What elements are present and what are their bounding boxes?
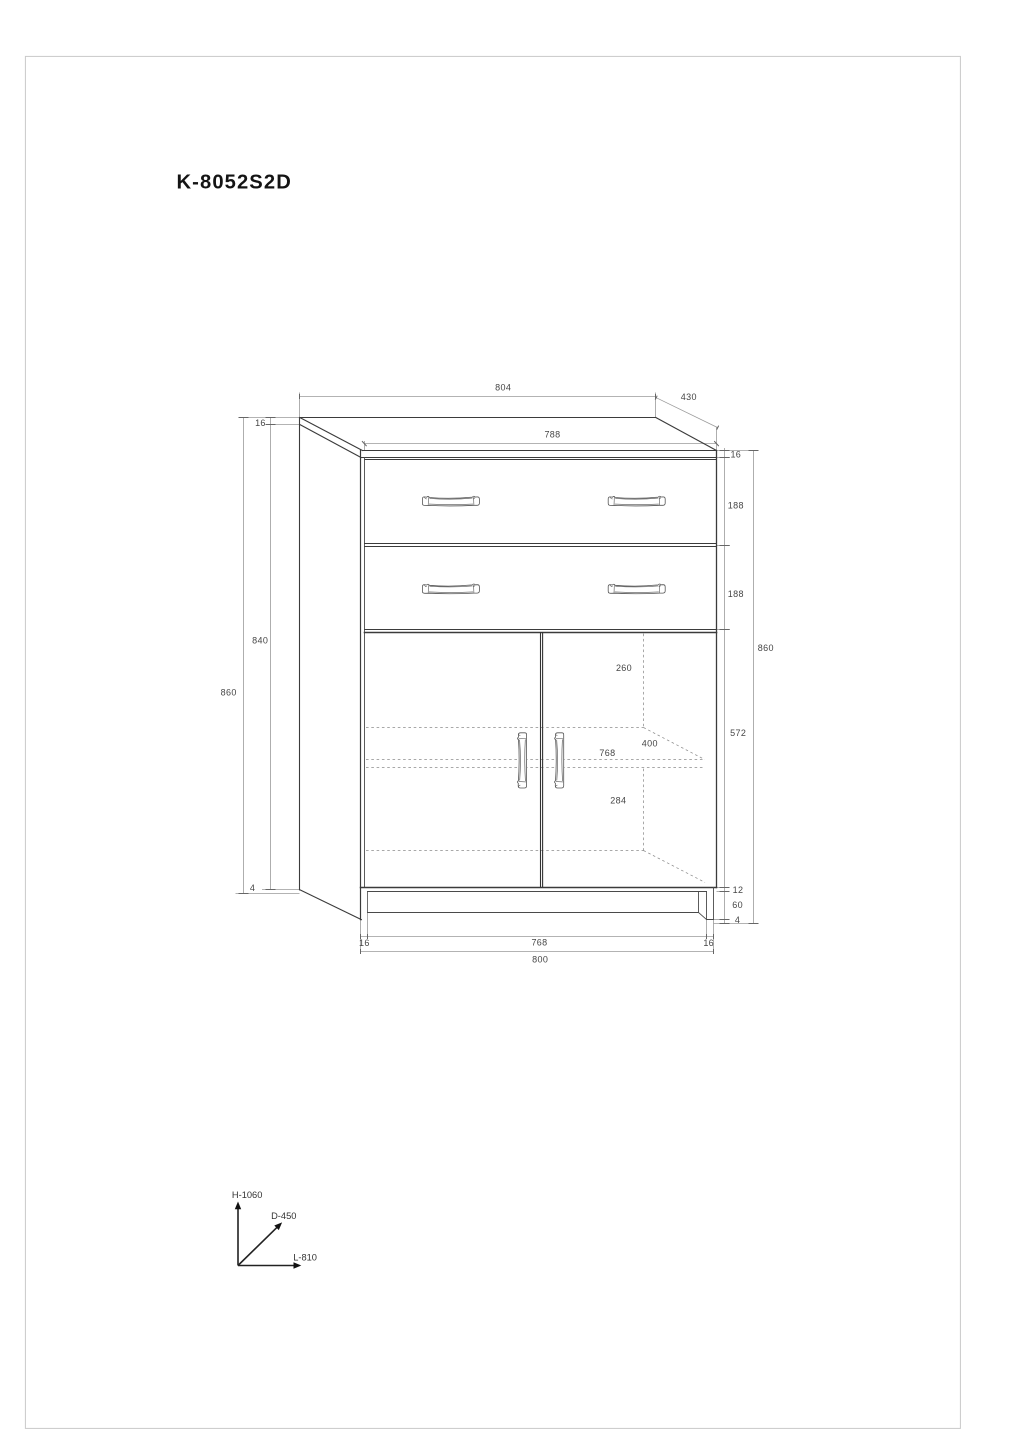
svg-text:K-8052S2D: K-8052S2D (177, 172, 292, 194)
svg-text:400: 400 (642, 738, 658, 748)
svg-text:788: 788 (544, 430, 560, 440)
svg-text:16: 16 (359, 938, 370, 948)
svg-text:4: 4 (735, 915, 740, 925)
svg-text:284: 284 (610, 795, 626, 805)
svg-text:16: 16 (255, 418, 266, 428)
svg-text:860: 860 (221, 687, 237, 697)
svg-text:260: 260 (616, 663, 632, 673)
svg-text:800: 800 (532, 955, 548, 965)
svg-text:188: 188 (728, 501, 744, 511)
svg-text:D-450: D-450 (271, 1211, 296, 1221)
svg-text:768: 768 (531, 937, 547, 947)
svg-text:804: 804 (495, 382, 511, 392)
svg-text:188: 188 (728, 589, 744, 599)
svg-text:4: 4 (250, 883, 255, 893)
svg-text:768: 768 (599, 748, 615, 758)
svg-text:572: 572 (730, 728, 746, 738)
svg-text:16: 16 (703, 938, 714, 948)
svg-text:60: 60 (732, 900, 743, 910)
svg-text:12: 12 (733, 885, 744, 895)
svg-text:H-1060: H-1060 (232, 1190, 263, 1200)
svg-text:860: 860 (758, 643, 774, 653)
svg-text:L-810: L-810 (293, 1253, 317, 1263)
svg-text:840: 840 (252, 635, 268, 645)
svg-text:430: 430 (681, 392, 697, 402)
svg-text:16: 16 (730, 450, 741, 460)
